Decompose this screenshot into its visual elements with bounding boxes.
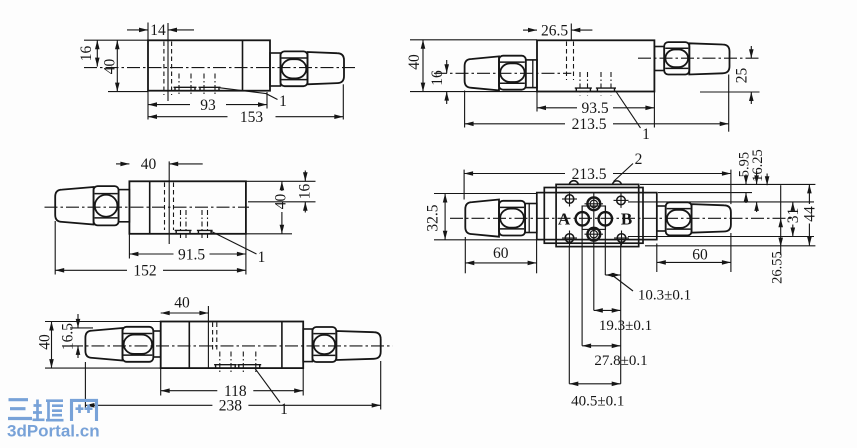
- svg-text:32.5: 32.5: [425, 204, 442, 231]
- svg-text:1: 1: [642, 126, 650, 143]
- svg-text:44: 44: [802, 206, 819, 222]
- svg-text:213.5: 213.5: [572, 116, 607, 133]
- svg-text:1: 1: [279, 93, 287, 110]
- svg-text:26.55: 26.55: [770, 251, 786, 284]
- svg-text:16.5: 16.5: [60, 323, 77, 350]
- svg-text:1: 1: [280, 401, 288, 418]
- svg-text:10.3±0.1: 10.3±0.1: [638, 288, 691, 304]
- svg-text:16: 16: [429, 70, 446, 86]
- svg-text:40.5±0.1: 40.5±0.1: [571, 394, 624, 410]
- svg-text:40: 40: [174, 295, 190, 312]
- svg-text:153: 153: [240, 109, 264, 126]
- svg-text:16: 16: [78, 46, 95, 62]
- svg-text:16: 16: [297, 184, 314, 200]
- svg-text:A: A: [558, 210, 571, 229]
- svg-text:93.5: 93.5: [581, 100, 608, 117]
- svg-text:213.5: 213.5: [572, 166, 607, 183]
- svg-text:152: 152: [133, 263, 156, 280]
- svg-text:40: 40: [141, 156, 157, 173]
- svg-text:60: 60: [692, 247, 708, 264]
- svg-text:1: 1: [258, 249, 266, 266]
- svg-text:31: 31: [785, 208, 802, 224]
- svg-text:14: 14: [150, 22, 166, 39]
- svg-text:91.5: 91.5: [178, 246, 205, 263]
- svg-text:3dPortal.cn: 3dPortal.cn: [7, 422, 100, 441]
- svg-text:19.3±0.1: 19.3±0.1: [599, 318, 652, 334]
- svg-text:40: 40: [37, 334, 54, 350]
- svg-text:238: 238: [219, 398, 243, 415]
- svg-text:40: 40: [406, 54, 423, 70]
- svg-text:25: 25: [734, 68, 751, 84]
- svg-text:27.8±0.1: 27.8±0.1: [594, 353, 647, 369]
- svg-text:93: 93: [200, 97, 216, 114]
- svg-text:2: 2: [635, 151, 643, 168]
- svg-text:40: 40: [102, 59, 119, 75]
- svg-text:16.25: 16.25: [750, 149, 766, 182]
- svg-text:26.5: 26.5: [541, 22, 568, 39]
- svg-text:60: 60: [493, 245, 509, 262]
- svg-text:B: B: [621, 210, 632, 229]
